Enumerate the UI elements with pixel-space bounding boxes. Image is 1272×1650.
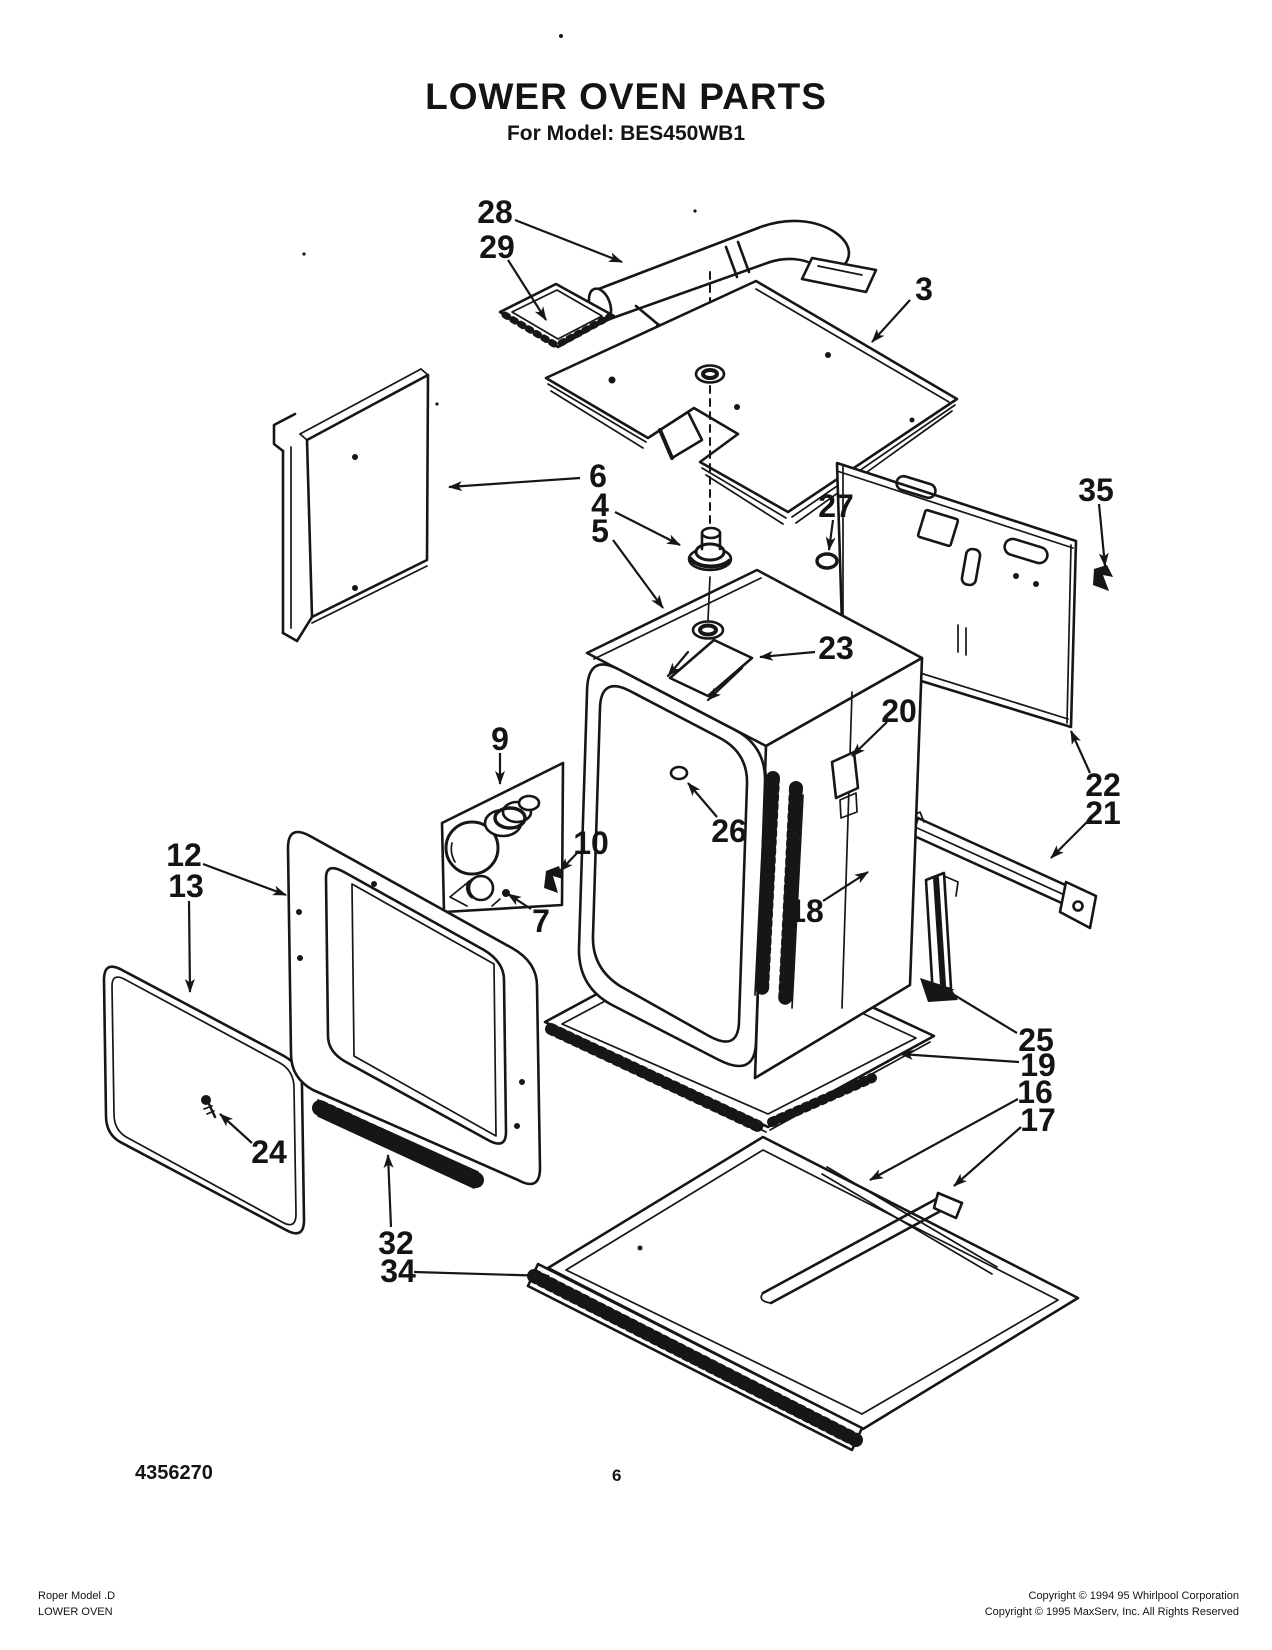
footer-copyright-line1: Copyright © 1994 95 Whirlpool Corporatio… xyxy=(985,1588,1239,1604)
part-callout-13: 13 xyxy=(168,868,204,992)
part-number-13: 13 xyxy=(168,868,204,904)
footer-right: Copyright © 1994 95 Whirlpool Corporatio… xyxy=(985,1588,1239,1620)
part-callout-21: 21 xyxy=(1051,795,1121,858)
light-assembly xyxy=(442,763,563,912)
leader-line-19 xyxy=(900,1054,1019,1062)
footer-copyright-line2: Copyright © 1995 MaxServ, Inc. All Right… xyxy=(985,1604,1239,1620)
part-number-34: 34 xyxy=(380,1253,416,1289)
leader-line-21 xyxy=(1051,822,1087,858)
part-number-3: 3 xyxy=(915,271,933,307)
footer-section-line: LOWER OVEN xyxy=(38,1604,115,1620)
leader-line-16 xyxy=(870,1099,1018,1180)
leader-line-3 xyxy=(872,300,910,342)
part-number-21: 21 xyxy=(1085,795,1121,831)
part-callout-5: 5 xyxy=(591,513,663,608)
leader-line-32 xyxy=(388,1155,391,1227)
footer-left: Roper Model .D LOWER OVEN xyxy=(38,1588,115,1620)
part-number-28: 28 xyxy=(477,194,513,230)
ring-washer xyxy=(817,554,837,568)
leader-line-4 xyxy=(615,512,680,545)
exploded-parts-diagram: 2829364527352320269107222118251916171213… xyxy=(0,0,1272,1650)
left-side-panel xyxy=(274,369,428,641)
part-callout-22: 22 xyxy=(1071,731,1121,803)
bottom-panel xyxy=(528,1137,1078,1450)
part-number-29: 29 xyxy=(479,229,515,265)
part-number-23: 23 xyxy=(818,630,854,666)
part-number-17: 17 xyxy=(1020,1102,1056,1138)
document-number: 4356270 xyxy=(135,1462,213,1485)
part-number-24: 24 xyxy=(251,1134,287,1170)
part-number-27: 27 xyxy=(818,488,854,524)
leader-line-17 xyxy=(954,1127,1021,1186)
part-number-35: 35 xyxy=(1078,472,1114,508)
part-number-9: 9 xyxy=(491,721,509,757)
leader-line-28 xyxy=(515,220,622,262)
part-number-18: 18 xyxy=(788,893,824,929)
part-callout-6: 6 xyxy=(449,458,607,494)
part-callout-35: 35 xyxy=(1078,472,1114,566)
part-number-20: 20 xyxy=(881,693,917,729)
part-callout-32: 32 xyxy=(378,1155,414,1261)
leader-line-13 xyxy=(189,901,190,992)
small-bracket xyxy=(920,873,958,1002)
leader-line-6 xyxy=(449,478,580,487)
part-number-7: 7 xyxy=(532,903,550,939)
part-callout-9: 9 xyxy=(491,721,509,784)
retainer-clip xyxy=(1093,565,1113,591)
parts-catalog-page: LOWER OVEN PARTS For Model: BES450WB1 xyxy=(0,0,1272,1650)
leader-line-12 xyxy=(203,864,286,895)
part-number-10: 10 xyxy=(573,825,609,861)
leader-line-5 xyxy=(613,540,663,608)
part-number-26: 26 xyxy=(711,813,747,849)
part-number-5: 5 xyxy=(591,513,609,549)
part-callout-17: 17 xyxy=(954,1102,1056,1186)
page-number: 6 xyxy=(612,1466,621,1486)
leader-line-35 xyxy=(1099,504,1105,566)
leader-line-27 xyxy=(829,520,833,550)
part-callout-34: 34 xyxy=(380,1253,549,1289)
footer-model-line: Roper Model .D xyxy=(38,1588,115,1604)
leader-line-25 xyxy=(941,987,1017,1033)
oven-cavity xyxy=(579,570,922,1078)
part-callout-3: 3 xyxy=(872,271,933,342)
